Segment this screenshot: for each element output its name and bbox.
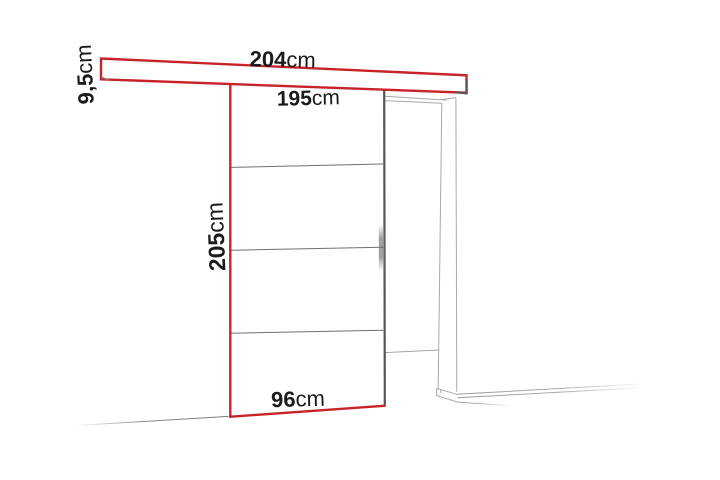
svg-text:195cm: 195cm — [277, 86, 341, 111]
svg-text:9,5cm: 9,5cm — [71, 44, 99, 105]
svg-text:96cm: 96cm — [271, 386, 325, 412]
svg-text:205cm: 205cm — [202, 202, 231, 272]
svg-text:204cm: 204cm — [249, 46, 316, 72]
